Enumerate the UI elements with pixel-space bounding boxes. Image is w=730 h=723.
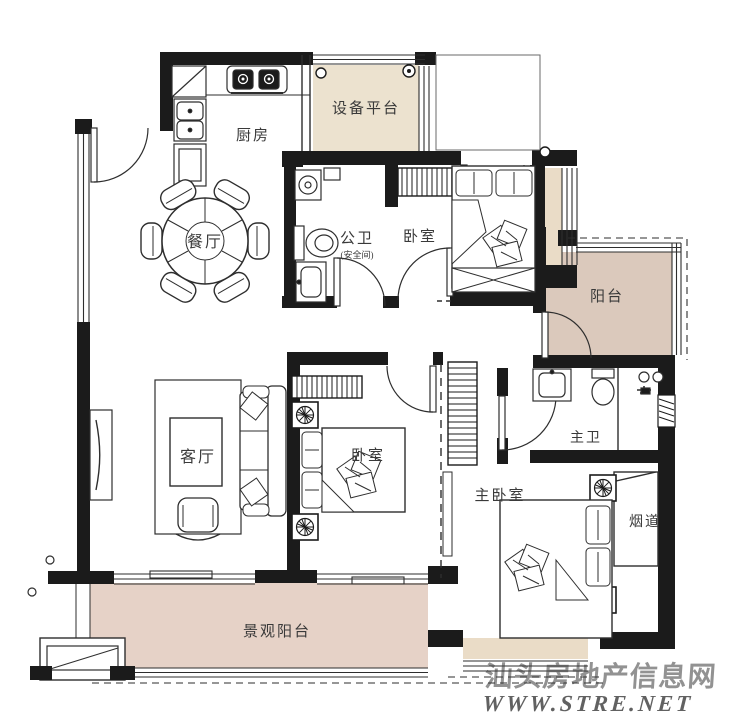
platform-east-window — [419, 66, 429, 151]
room-sublabel-public-bath: (安全间) — [341, 249, 374, 260]
kitchen-cabinet — [174, 144, 206, 186]
toilet-icon — [294, 226, 338, 260]
room-label-kitchen: 厨房 — [236, 127, 270, 144]
public-bath-door — [334, 258, 385, 306]
watermark-site-url: WWW.STRE.NET — [482, 690, 694, 716]
floor-plan: 厨房 设备平台 餐厅 公卫 (安全间) 卧室 阳台 客厅 卧室 主卫 主卧室 烟… — [0, 0, 730, 723]
bed-end-bench — [452, 268, 535, 292]
balcony-slider-east — [317, 574, 428, 584]
wardrobes — [292, 168, 477, 465]
bed — [500, 500, 612, 638]
vanity-icon — [533, 369, 571, 401]
master-bay-window-floor — [463, 638, 588, 659]
washer-icon — [295, 170, 321, 200]
floor-plan-drawing: 厨房 设备平台 餐厅 公卫 (安全间) 卧室 阳台 客厅 卧室 主卫 主卧室 烟… — [0, 0, 730, 723]
wardrobe-bedroom-top — [398, 168, 452, 196]
bedroom-mid-furniture — [292, 402, 405, 540]
sofa — [240, 386, 286, 516]
wardrobe-master — [448, 362, 477, 465]
public-bath-fixtures — [294, 168, 340, 302]
room-label-master-bath: 主卫 — [570, 430, 602, 446]
bedroom-top-door — [398, 248, 453, 300]
side-entry-door — [91, 128, 148, 182]
watermark: 汕头房地产信息网 WWW.STRE.NET — [482, 660, 718, 716]
vent-fan-icon — [292, 402, 318, 428]
slider-panel — [352, 577, 404, 584]
living-west-window — [78, 134, 89, 322]
washbasin-icon — [296, 262, 326, 302]
platform-north-window — [313, 55, 425, 64]
louver-vent — [658, 395, 675, 427]
room-label-view-balcony: 景观阳台 — [243, 623, 311, 640]
room-label-equipment-platform: 设备平台 — [332, 100, 400, 117]
wardrobe-bedroom-mid — [292, 376, 362, 398]
tv-cabinet — [90, 410, 112, 500]
room-label-bedroom-mid: 卧室 — [351, 447, 385, 464]
fridge-icon — [172, 66, 206, 97]
room-label-dining: 餐厅 — [187, 233, 223, 251]
toilet-icon — [592, 369, 614, 405]
vent-fan-icon — [292, 514, 318, 540]
vent-fan-icon — [590, 475, 616, 501]
room-label-public-bath: 公卫 — [340, 231, 374, 247]
kitchen-sink-icon — [174, 99, 206, 141]
bath-shelf — [324, 168, 340, 180]
bedroom-bay-window-floor — [545, 168, 562, 265]
stove-icon — [227, 66, 287, 93]
bedroom-top-furniture — [452, 166, 535, 292]
bedroom-mid-door — [387, 366, 436, 412]
room-label-living: 客厅 — [180, 448, 216, 466]
balcony-slider-west — [114, 574, 255, 584]
bed — [302, 428, 405, 512]
room-label-master-bedroom: 主卧室 — [474, 487, 525, 504]
room-label-flue: 烟道 — [629, 514, 661, 530]
room-label-balcony: 阳台 — [590, 288, 624, 305]
bedroom-bay-window — [562, 168, 577, 265]
room-label-bedroom-top: 卧室 — [403, 228, 437, 245]
watermark-site-name: 汕头房地产信息网 — [484, 660, 718, 693]
view-balcony-railing — [92, 668, 428, 677]
master-bath-fixtures — [533, 369, 663, 405]
